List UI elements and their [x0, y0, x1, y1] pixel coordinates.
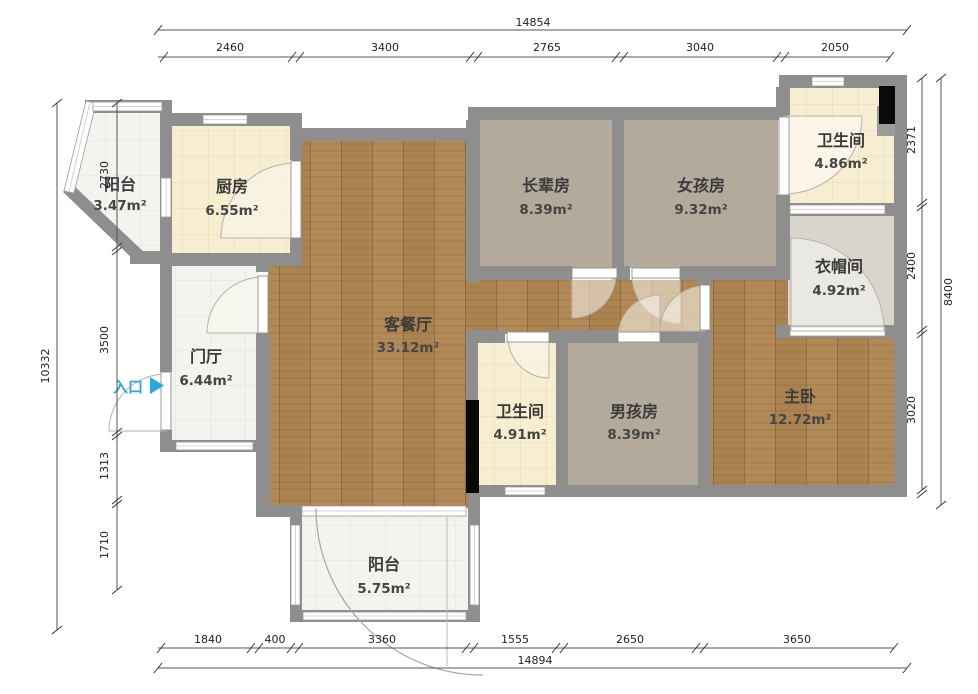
- dim-left-seg-2: 1313: [98, 452, 111, 480]
- dim-bottom-total: 14894: [518, 654, 553, 667]
- room-label-bathroom-mid: 卫生间: [496, 402, 544, 421]
- wall-segment: [556, 343, 568, 488]
- wall-segment: [612, 120, 624, 280]
- wall-segment: [698, 330, 711, 497]
- room-area-cloakroom: 4.92m²: [812, 283, 865, 299]
- dim-left-seg-1: 3500: [98, 326, 111, 354]
- dim-bottom-seg-4: 2650: [616, 633, 644, 646]
- room-area-living: 33.12m²: [377, 340, 440, 356]
- dim-bottom-seg-2: 3360: [368, 633, 396, 646]
- fixture-black-bathroom-top: [879, 86, 895, 124]
- door-leaf-bathroom-top[interactable]: [779, 117, 789, 195]
- dim-right-seg-1: 2400: [905, 252, 918, 280]
- wall-segment: [466, 120, 480, 282]
- wall-segment: [776, 87, 790, 115]
- room-area-foyer: 6.44m²: [179, 373, 232, 389]
- room-label-balcony-bottom: 阳台: [368, 555, 400, 574]
- room-area-balcony-top: 3.47m²: [93, 198, 146, 214]
- wall-segment: [290, 113, 302, 160]
- dim-right-seg-2: 3020: [905, 396, 918, 424]
- dim-top-seg-0: 2460: [216, 41, 244, 54]
- door-leaf-boy[interactable]: [618, 332, 660, 342]
- wall-segment: [617, 266, 630, 280]
- dim-top-seg-1: 3400: [371, 41, 399, 54]
- wall-segment: [556, 485, 712, 497]
- dim-bottom-seg-1: 400: [265, 633, 286, 646]
- room-label-foyer: 门厅: [190, 347, 222, 366]
- room-area-girl: 9.32m²: [674, 202, 727, 218]
- floor-plan-canvas: 阳台 3.47m² 厨房 6.55m² 客餐厅 33.12m² 门厅 6.44m…: [0, 0, 978, 694]
- wall-segment: [560, 330, 618, 343]
- room-label-boy: 男孩房: [610, 402, 658, 421]
- room-area-master: 12.72m²: [769, 412, 832, 428]
- room-label-cloakroom: 衣帽间: [815, 257, 863, 276]
- wall-segment: [468, 107, 788, 120]
- wall-segment: [166, 253, 302, 266]
- door-leaf-elder[interactable]: [572, 268, 617, 278]
- dim-top-total: 14854: [516, 16, 551, 29]
- wall-segment: [290, 238, 302, 266]
- wall-segment: [466, 266, 572, 280]
- room-label-living: 客餐厅: [384, 315, 432, 334]
- dim-top-seg-3: 3040: [686, 41, 714, 54]
- door-leaf-entrance[interactable]: [161, 372, 171, 430]
- wall-segment: [256, 505, 302, 517]
- door-leaf-bathroom-mid[interactable]: [507, 332, 549, 342]
- wall-segment: [160, 253, 172, 372]
- room-label-girl: 女孩房: [677, 176, 725, 195]
- dim-bottom-seg-5: 3650: [783, 633, 811, 646]
- dim-top-seg-4: 2050: [821, 41, 849, 54]
- room-area-balcony-bottom: 5.75m²: [357, 581, 410, 597]
- room-label-kitchen: 厨房: [216, 177, 248, 196]
- room-area-bathroom-mid: 4.91m²: [493, 427, 546, 443]
- room-label-bathroom-top: 卫生间: [817, 131, 865, 150]
- door-leaf-kitchen[interactable]: [291, 161, 301, 238]
- dim-bottom-seg-0: 1840: [194, 633, 222, 646]
- wall-segment: [680, 266, 788, 280]
- wall-segment: [698, 276, 711, 285]
- dim-right-seg-0: 2371: [905, 126, 918, 154]
- door-leaf-foyer[interactable]: [258, 276, 268, 333]
- door-leaf-girl[interactable]: [632, 268, 680, 278]
- room-area-kitchen: 6.55m²: [205, 203, 258, 219]
- door-leaf-master[interactable]: [700, 285, 710, 330]
- wall-segment: [290, 128, 480, 141]
- wall-segment: [700, 485, 907, 497]
- wall-segment: [256, 333, 270, 445]
- room-area-bathroom-top: 4.86m²: [814, 156, 867, 172]
- dim-left-total: 10332: [39, 349, 52, 384]
- dim-top-seg-2: 2765: [533, 41, 561, 54]
- floor-plan-page: 阳台 3.47m² 厨房 6.55m² 客餐厅 33.12m² 门厅 6.44m…: [0, 0, 978, 694]
- room-area-elder: 8.39m²: [519, 202, 572, 218]
- dim-bottom-seg-3: 1555: [501, 633, 529, 646]
- room-area-boy: 8.39m²: [607, 427, 660, 443]
- fixture-black-bathroom-mid: [466, 400, 479, 493]
- room-label-elder: 长辈房: [522, 176, 570, 195]
- dim-right-total: 8400: [942, 278, 955, 306]
- wall-segment: [466, 330, 505, 343]
- room-label-master: 主卧: [784, 387, 816, 406]
- dim-left-seg-3: 1710: [98, 531, 111, 559]
- dim-left-seg-0: 2730: [98, 161, 111, 189]
